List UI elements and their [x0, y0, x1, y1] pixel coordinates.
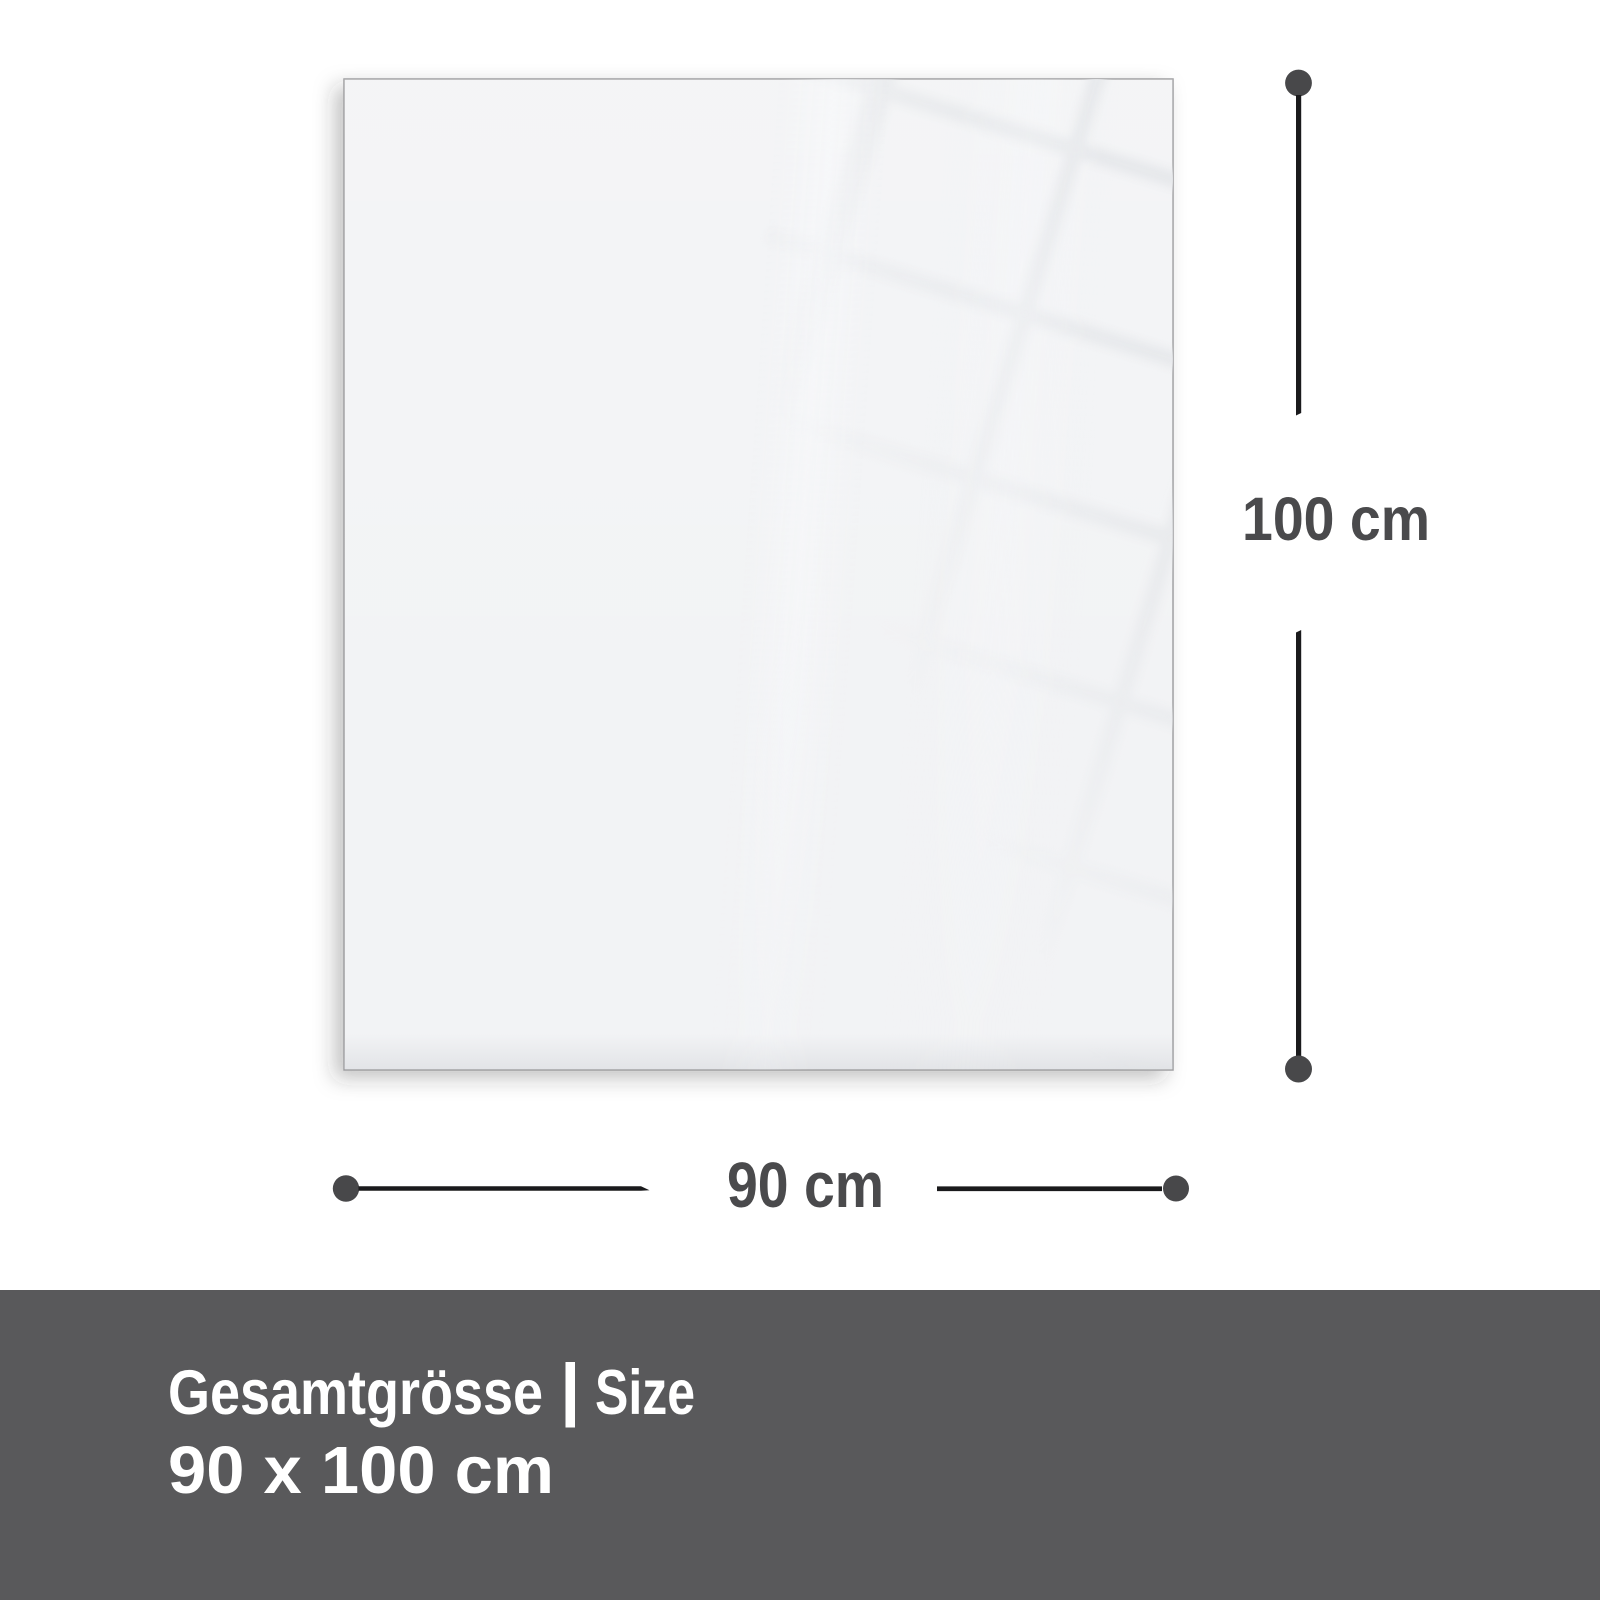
svg-text:Gesamtgrösse: Gesamtgrösse: [168, 1358, 543, 1428]
svg-text:Size: Size: [595, 1358, 695, 1428]
svg-text:90 x 100 cm: 90 x 100 cm: [168, 1434, 554, 1508]
svg-text:100 cm: 100 cm: [1242, 485, 1430, 553]
svg-text:90 cm: 90 cm: [727, 1149, 884, 1221]
